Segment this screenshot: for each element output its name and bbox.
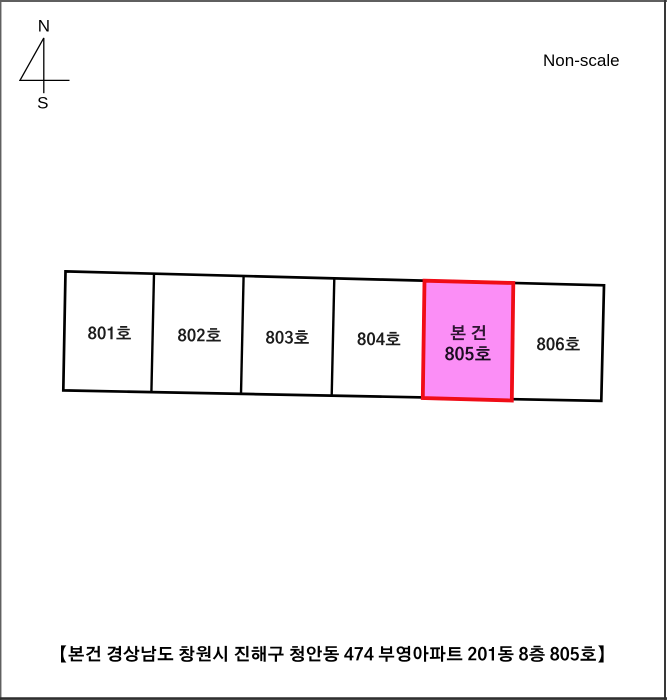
svg-text:N: N xyxy=(38,17,50,36)
svg-text:S: S xyxy=(37,93,48,112)
svg-text:Non-scale: Non-scale xyxy=(543,51,620,70)
